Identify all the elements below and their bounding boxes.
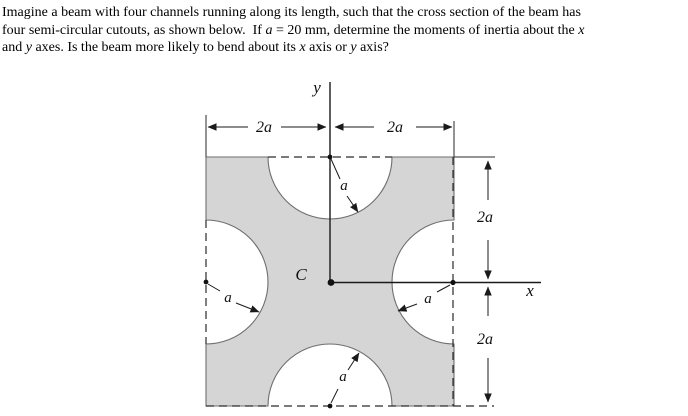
- problem-text-line-2: four semi-circular cutouts, as shown bel…: [2, 22, 688, 40]
- radius-right-leader: [437, 285, 450, 292]
- radius-bottom-arrow: [348, 353, 359, 370]
- x-axis-label: x: [525, 281, 534, 300]
- radius-top-arrow: [347, 196, 358, 212]
- top-cutout-center-dot: [328, 155, 333, 160]
- radius-right-arrow: [398, 304, 417, 311]
- dim-top-right-label: 2a: [387, 119, 403, 136]
- problem-text: Imagine a beam with four channels runnin…: [2, 4, 688, 57]
- extension-ticks: [206, 115, 495, 157]
- radius-left-leader: [208, 284, 220, 291]
- radius-top-label: a: [340, 178, 348, 194]
- problem-text-line-3: and y axes. Is the beam more likely to b…: [2, 39, 688, 57]
- radius-left-arrow: [236, 303, 259, 312]
- bottom-cutout-center-dot: [328, 404, 333, 409]
- y-axis-label: y: [311, 78, 321, 97]
- centroid-dot: [328, 279, 335, 286]
- right-cutout-center-dot: [450, 280, 455, 285]
- dim-right-lower-label: 2a: [477, 331, 493, 348]
- right-dimension-lines: 2a 2a: [477, 161, 493, 402]
- radius-left-label: a: [224, 290, 232, 306]
- radius-bottom-label: a: [339, 369, 347, 385]
- radius-right-label: a: [424, 291, 432, 307]
- dim-right-upper-label: 2a: [477, 209, 493, 226]
- problem-page: Imagine a beam with four channels runnin…: [0, 0, 688, 416]
- centroid-label: C: [295, 265, 307, 284]
- left-cutout-center-dot: [204, 280, 209, 285]
- problem-text-line-1: Imagine a beam with four channels runnin…: [2, 4, 688, 22]
- radius-top-leader: [331, 159, 340, 179]
- radius-bottom-leader: [331, 389, 338, 403]
- cross-section-diagram: y x 2a 2a 2a 2a a a: [0, 0, 688, 416]
- dim-top-left-label: 2a: [256, 119, 272, 136]
